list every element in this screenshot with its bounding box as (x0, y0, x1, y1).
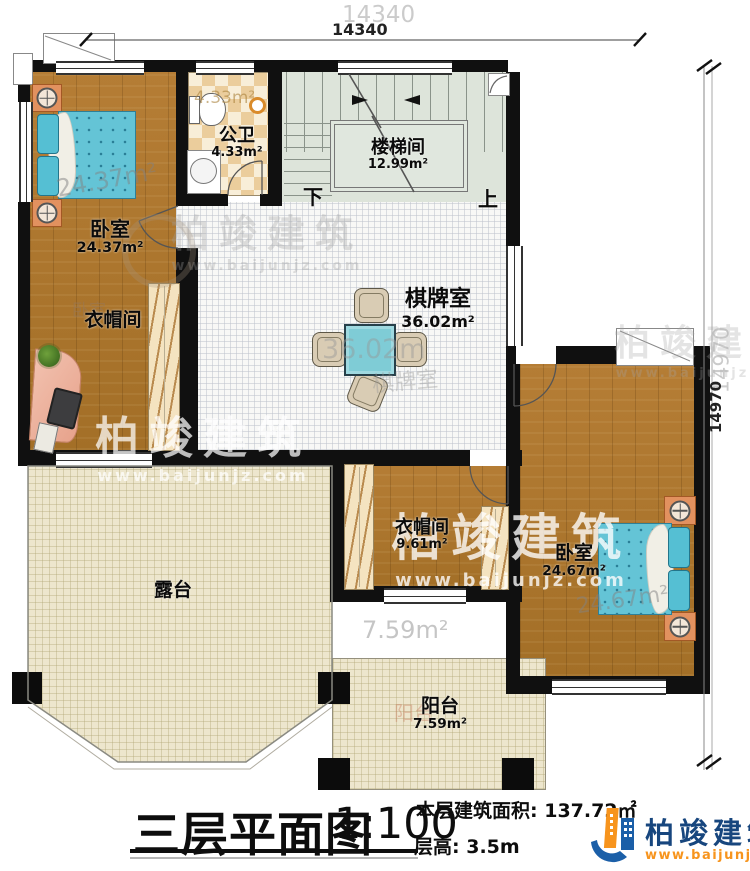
lamp-icon (37, 88, 58, 109)
echo-gameroom-name: 棋牌室 (371, 361, 440, 399)
bed-pillow (668, 570, 690, 611)
window (506, 246, 523, 346)
room-name: 阳台 (400, 696, 480, 717)
window (196, 61, 254, 75)
floor-area-label: 本层建筑面积: (416, 800, 538, 822)
watermark: 柏竣建筑 www.baijunjz.com (58, 402, 348, 485)
brand-url: www.baijunjz.com (645, 848, 750, 863)
brand-logo-icon (583, 804, 643, 868)
bay-window-side (13, 53, 33, 85)
title-underline (130, 849, 418, 853)
label-gameroom: 棋牌室 36.02m² (378, 288, 498, 330)
room-name: 卧室 (524, 543, 624, 564)
label-balcony: 阳台 7.59m² (400, 696, 480, 733)
sink-basin (190, 158, 217, 184)
lamp-icon (670, 616, 691, 637)
room-area: 9.61m² (372, 538, 472, 553)
bay-window (43, 33, 115, 64)
room-name: 卧室 (55, 218, 165, 240)
echo-bathroom-area: 4.33m² (194, 88, 255, 108)
dim-tick (706, 758, 721, 769)
room-area: 24.37m² (55, 240, 165, 256)
logo-tower-blue (621, 818, 634, 850)
room-name: 棋牌室 (378, 288, 498, 313)
room-area: 4.33m² (182, 146, 292, 161)
floor-height-value: 3.5m (466, 836, 519, 858)
wall (18, 202, 30, 466)
pillar (318, 758, 350, 790)
nightstand (32, 84, 62, 112)
window (338, 61, 452, 75)
plant-icon (38, 345, 60, 367)
wall (506, 72, 520, 246)
nightstand (664, 612, 696, 641)
room-name: 衣帽间 (58, 310, 168, 331)
wall (330, 466, 344, 602)
room-area: 24.67m² (524, 564, 624, 579)
label-terrace: 露台 (138, 580, 208, 601)
floor-height-line: 层高: 3.5m (414, 832, 520, 859)
dim-tick (697, 60, 712, 71)
wall (506, 346, 516, 364)
label-bathroom: 公卫 4.33m² (182, 126, 292, 161)
label-bedroom2: 卧室 24.67m² (524, 543, 624, 580)
room-area: 36.02m² (378, 313, 498, 331)
pillar (502, 758, 534, 790)
label-bedroom1: 卧室 24.37m² (55, 218, 165, 257)
label-cloakroom-left: 衣帽间 (58, 310, 168, 331)
terrace-floor (28, 466, 332, 764)
bed-pillow (37, 114, 59, 154)
echo-gameroom-area: 36.02m (322, 334, 426, 365)
bed-pillow (668, 527, 690, 568)
dimension-right: 14970 (707, 381, 725, 433)
label-cloakroom-right: 衣帽间 9.61m² (372, 518, 472, 553)
room-area: 7.59m² (400, 717, 480, 732)
room-name: 公卫 (182, 126, 292, 146)
pillar (318, 672, 350, 704)
window (19, 102, 33, 202)
dim-tick (697, 755, 712, 766)
dim-tick (634, 33, 646, 46)
window (552, 679, 666, 695)
stair-up-label: 上 (478, 188, 498, 210)
room-name: 楼梯间 (334, 138, 462, 158)
window (56, 61, 144, 75)
corner-window (488, 73, 510, 96)
stair-down-label: 下 (303, 186, 323, 208)
lamp-icon (670, 500, 691, 521)
watermark-url: www.baijunjz.com (58, 466, 348, 485)
label-stairwell: 楼梯间 12.99m² (334, 138, 462, 173)
room-name: 衣帽间 (372, 518, 472, 538)
brand-name: 柏竣建筑 (645, 810, 750, 852)
pillar (12, 672, 42, 704)
floor-plan: 柏竣建筑 www.baijunjz.com 柏竣建筑 www.baijunjz.… (0, 0, 750, 871)
title-underline-thin (130, 857, 418, 859)
room-area: 12.99m² (334, 158, 462, 173)
echo-balcony-area: 7.59m² (362, 616, 448, 644)
watermark-name: 柏竣建筑 (58, 402, 348, 466)
nightstand (664, 496, 696, 525)
floor-height-label: 层高: (414, 836, 460, 858)
dimension-top: 14340 (332, 20, 388, 39)
dim-tick (706, 63, 721, 74)
